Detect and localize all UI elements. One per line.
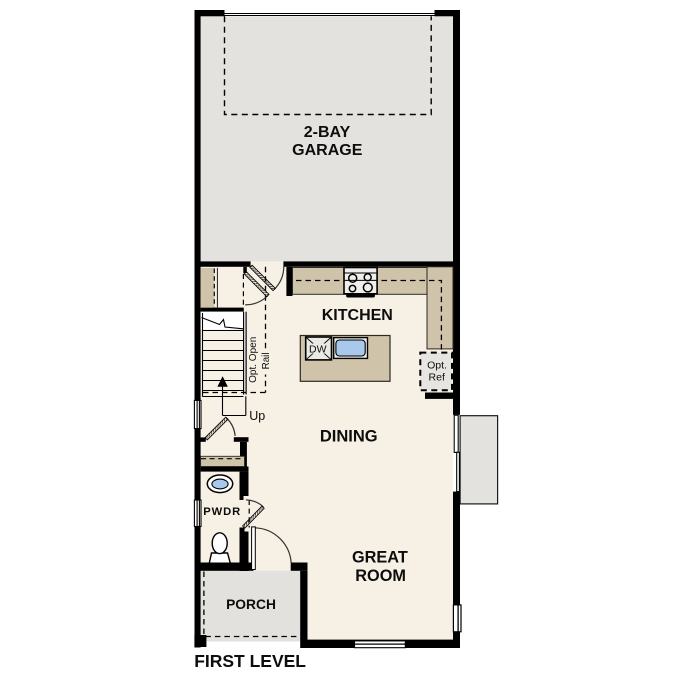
svg-text:2-BAY: 2-BAY xyxy=(304,124,351,141)
svg-text:GARAGE: GARAGE xyxy=(292,142,363,159)
svg-text:DINING: DINING xyxy=(320,428,378,446)
svg-text:PORCH: PORCH xyxy=(226,597,276,612)
svg-text:PWDR: PWDR xyxy=(203,506,241,518)
svg-text:Rail: Rail xyxy=(261,352,272,369)
svg-text:DW: DW xyxy=(309,344,327,356)
svg-text:KITCHEN: KITCHEN xyxy=(322,307,393,324)
svg-text:Up: Up xyxy=(249,409,265,423)
svg-text:GREAT: GREAT xyxy=(352,548,408,566)
svg-text:Ref: Ref xyxy=(429,371,445,383)
svg-text:Opt.: Opt. xyxy=(427,359,447,371)
svg-text:Opt. Open: Opt. Open xyxy=(248,337,259,383)
svg-text:FIRST LEVEL: FIRST LEVEL xyxy=(194,651,306,671)
svg-text:ROOM: ROOM xyxy=(355,567,406,585)
